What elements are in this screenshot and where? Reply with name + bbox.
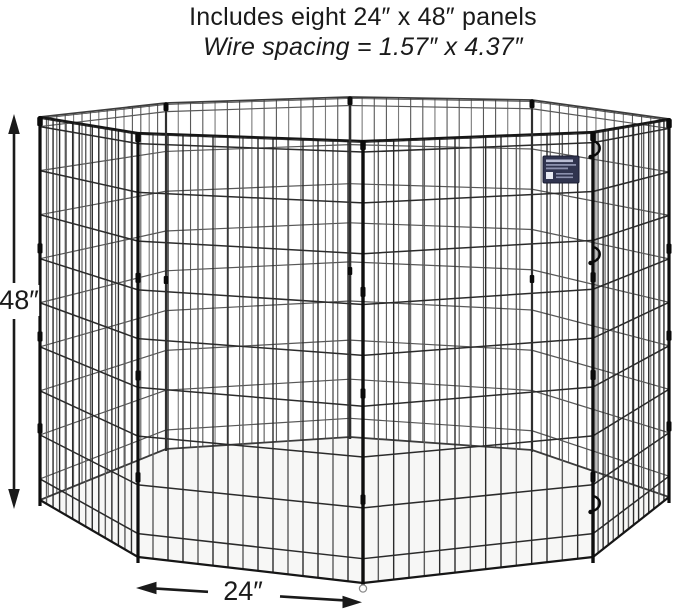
headline-line1: Includes eight 24″ x 48″ panels <box>189 3 537 33</box>
height-dimension-label: 48″ <box>0 285 39 316</box>
center-post-foot <box>359 585 366 592</box>
product-tag <box>543 156 579 183</box>
pen-floor <box>40 437 669 583</box>
pen-illustration <box>0 0 679 609</box>
headline: Includes eight 24″ x 48″ panels Wire spa… <box>189 3 537 62</box>
headline-line2: Wire spacing = 1.57″ x 4.37″ <box>189 33 537 63</box>
product-image: Includes eight 24″ x 48″ panels Wire spa… <box>0 0 679 609</box>
width-dimension-label: 24″ <box>223 576 263 607</box>
